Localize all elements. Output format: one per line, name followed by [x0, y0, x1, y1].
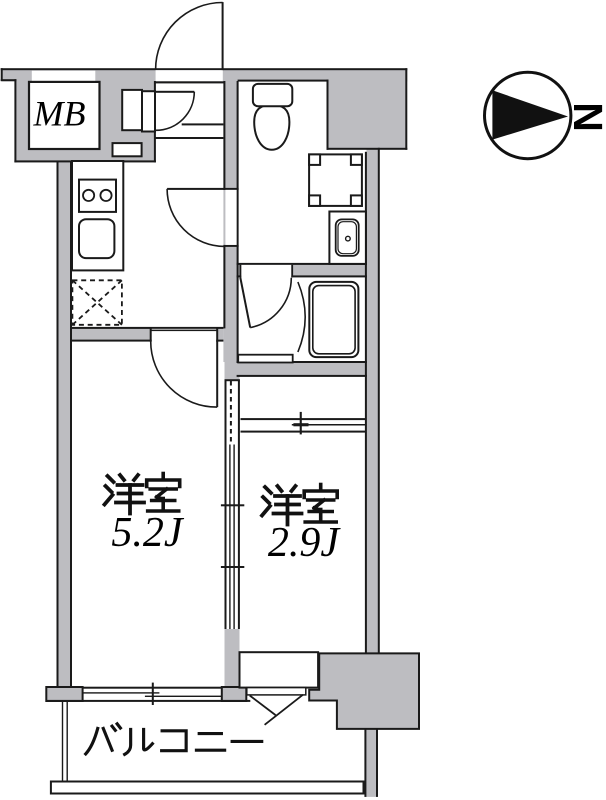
svg-text:MB: MB [33, 94, 86, 134]
svg-text:2.9J: 2.9J [268, 520, 342, 566]
svg-text:N: N [565, 102, 606, 132]
svg-text:5.2J: 5.2J [111, 510, 185, 556]
